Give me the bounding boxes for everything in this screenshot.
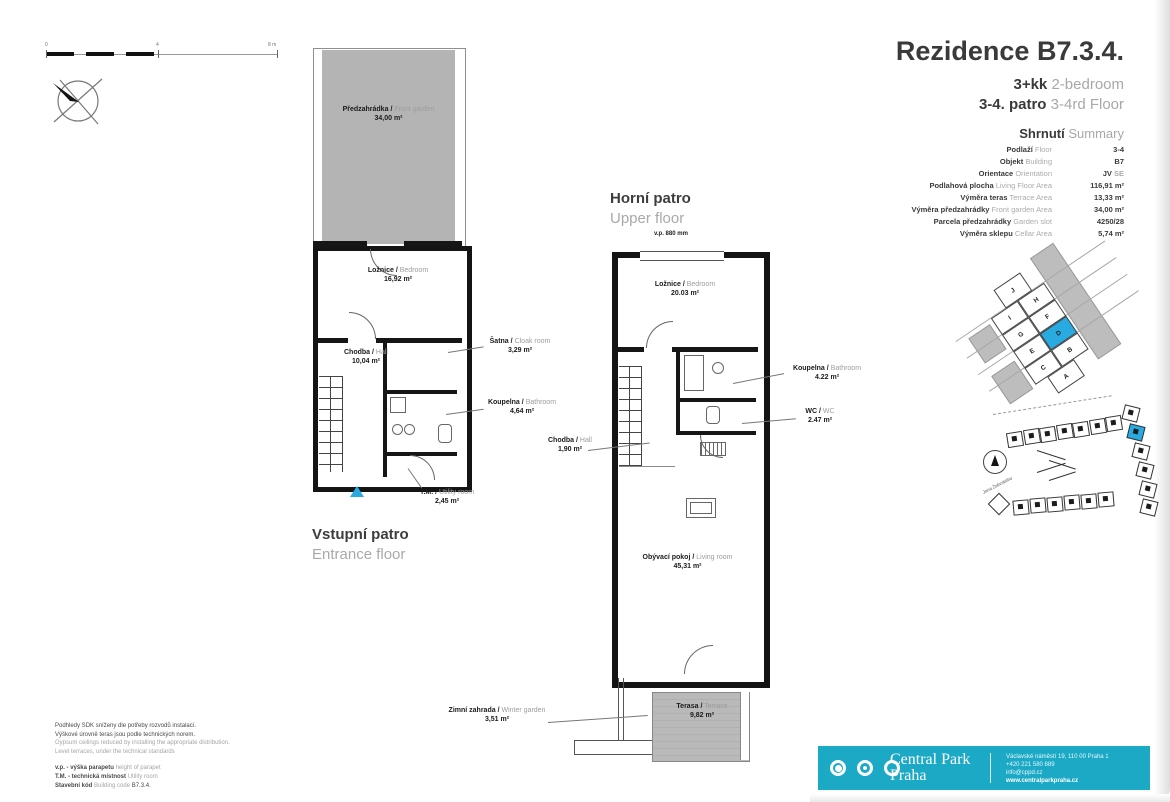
building-dot bbox=[1142, 466, 1148, 472]
wall bbox=[376, 338, 462, 343]
note-line: Výškové úrovně teras jsou podle technick… bbox=[55, 731, 315, 740]
entrance-floor-title-cz: Vstupní patro bbox=[312, 526, 409, 543]
building-square bbox=[1105, 415, 1123, 432]
site-plot-diagram: J I H G F E D C B A bbox=[998, 252, 1138, 392]
winter-garden-post bbox=[618, 678, 624, 740]
summary-row: Výměra teras Terrace Area 13,33 m² bbox=[824, 192, 1124, 204]
wall bbox=[313, 241, 367, 248]
building-dot bbox=[1052, 501, 1057, 506]
scale-tick bbox=[46, 50, 47, 58]
room-label-hall-1: Chodba / Hall 10,04 m² bbox=[320, 348, 412, 366]
room-label-hall-2: Chodba / Hall 1,90 m² bbox=[534, 436, 606, 454]
building-dot bbox=[1103, 496, 1108, 501]
kitchen-unit-inner bbox=[690, 502, 712, 514]
site-map: Pitterova ulice Jana Želivského bbox=[975, 388, 1170, 523]
room-label-front-garden: Předzahrádka / Front garden 34,00 m² bbox=[322, 105, 455, 123]
brand-name: Central Park Praha bbox=[890, 752, 970, 784]
wall bbox=[672, 347, 758, 352]
building-dot bbox=[1077, 425, 1083, 431]
building-dot bbox=[1133, 428, 1139, 434]
summary-row: Podlahová plocha Living Floor Area 116,9… bbox=[824, 180, 1124, 192]
scale-line bbox=[46, 54, 278, 55]
arrow-line bbox=[1037, 450, 1066, 460]
basin-fixture bbox=[392, 424, 403, 435]
footnotes: Podhledy SDK sníženy dle potřeby rozvodů… bbox=[55, 722, 315, 790]
building-dot bbox=[1086, 497, 1091, 502]
footer-divider bbox=[990, 753, 991, 783]
scale-tick bbox=[277, 50, 278, 58]
bathtub-fixture bbox=[684, 355, 704, 391]
summary-row: Výměra předzahrádky Front garden Area 34… bbox=[824, 204, 1124, 216]
building-square bbox=[1088, 418, 1106, 435]
building-dot bbox=[1018, 504, 1023, 509]
upper-unit-outline bbox=[612, 252, 770, 688]
building-square bbox=[1063, 495, 1080, 511]
room-label-bedroom-1: Ložnice / Bedroom 16,92 m² bbox=[338, 266, 458, 284]
scale-segment bbox=[46, 52, 74, 56]
logo-circle-target-icon bbox=[830, 760, 846, 776]
wall bbox=[676, 352, 680, 435]
summary-table: Podlaží Floor 3-4 Objekt Building B7 Ori… bbox=[824, 144, 1124, 240]
room-label-terrace: Terasa / Terrace 9,82 m² bbox=[660, 702, 744, 720]
stairs-line bbox=[629, 366, 630, 466]
building-dot bbox=[1069, 499, 1074, 504]
page-title: Rezidence B7.3.4. bbox=[896, 36, 1124, 67]
building-dot bbox=[1110, 420, 1116, 426]
footer-contact: Václavské náměstí 19, 110 00 Praha 1 +42… bbox=[1006, 753, 1109, 785]
summary-heading: Shrnutí Summary bbox=[1019, 126, 1124, 141]
site-map-boundary bbox=[993, 395, 1112, 415]
kitchen-unit-symbol bbox=[686, 498, 716, 518]
building-dot bbox=[1145, 485, 1151, 491]
building-dot bbox=[1061, 428, 1067, 434]
upper-floor-title-cz: Horní patro bbox=[610, 190, 691, 207]
basin-fixture bbox=[404, 424, 415, 435]
scale-label: 4 bbox=[156, 42, 159, 48]
stairs bbox=[619, 366, 642, 466]
building-square bbox=[1012, 499, 1029, 515]
building-dot bbox=[1028, 433, 1034, 439]
washer-fixture bbox=[390, 397, 406, 413]
room-label-bathroom-2: Koupelna / Bathroom 4.22 m² bbox=[781, 364, 873, 382]
building-square bbox=[1135, 461, 1154, 479]
summary-row: Orientace Orientation JV SE bbox=[824, 168, 1124, 180]
building-square bbox=[1046, 496, 1063, 512]
stairs-line bbox=[330, 376, 331, 472]
stair-landing-line bbox=[619, 466, 675, 467]
arrow-line bbox=[1049, 471, 1076, 481]
leader-line bbox=[548, 715, 648, 723]
note-spacer bbox=[55, 756, 315, 764]
scale-segment bbox=[126, 52, 154, 56]
building-dot bbox=[1146, 503, 1152, 509]
building-square bbox=[1138, 480, 1157, 498]
scale-label: 8 m bbox=[268, 42, 276, 48]
window bbox=[640, 251, 724, 261]
entrance-floor-title-en: Entrance floor bbox=[312, 546, 405, 563]
legend-line: v.p. - výška parapetu height of parapet bbox=[55, 764, 315, 773]
building-square bbox=[1080, 493, 1097, 509]
logo-circle-dot bbox=[835, 765, 842, 772]
building-square bbox=[1072, 420, 1090, 437]
upper-floor-title-en: Upper floor bbox=[610, 210, 684, 227]
page-edge-bottom bbox=[810, 794, 1170, 802]
room-label-winter-garden: Zimní zahrada / Winter garden 3,51 m² bbox=[442, 706, 552, 724]
building-dot bbox=[1035, 502, 1040, 507]
footer-phone: +420 221 580 889 bbox=[1006, 761, 1109, 769]
building-square bbox=[1006, 431, 1024, 448]
arrow-line bbox=[1049, 460, 1076, 470]
building-square bbox=[1139, 498, 1158, 516]
winter-garden-structure bbox=[574, 740, 656, 755]
room-label-cloak: Šatna / Cloak room 3,29 m² bbox=[476, 337, 564, 355]
site-compass-icon bbox=[983, 450, 1007, 474]
entrance-marker-triangle bbox=[350, 486, 364, 497]
building-square bbox=[1029, 498, 1046, 514]
scale-label: 0 bbox=[45, 42, 48, 48]
building-square bbox=[1055, 423, 1073, 440]
wall bbox=[383, 390, 457, 394]
building-square bbox=[1097, 491, 1114, 507]
summary-row: Objekt Building B7 bbox=[824, 156, 1124, 168]
compass-icon bbox=[48, 70, 108, 130]
room-label-bedroom-2: Ložnice / Bedroom 20.03 m² bbox=[630, 280, 740, 298]
building-dot bbox=[1094, 423, 1100, 429]
parapet-height-note: v.p. 880 mm bbox=[654, 231, 688, 237]
scale-bar: 0 4 8 m bbox=[46, 42, 278, 62]
room-label-utility: T.M. / Utility room 2,45 m² bbox=[408, 488, 486, 506]
building-dot bbox=[1011, 436, 1017, 442]
toilet-fixture bbox=[438, 424, 452, 443]
wall bbox=[618, 347, 644, 352]
unit-type: 3+kk 2-bedroom bbox=[1013, 76, 1124, 93]
wall bbox=[318, 338, 348, 343]
footer-website: www.centralparkpraha.cz bbox=[1006, 777, 1109, 785]
building-square bbox=[1131, 442, 1150, 460]
summary-row: Podlaží Floor 3-4 bbox=[824, 144, 1124, 156]
unit-floor: 3-4. patro 3-4rd Floor bbox=[979, 96, 1124, 113]
building-square-highlighted bbox=[1126, 423, 1145, 441]
wall bbox=[383, 452, 457, 456]
legend-line: T.M. - technická místnost Utility room bbox=[55, 773, 315, 782]
stairs bbox=[319, 376, 343, 472]
basin-fixture bbox=[712, 362, 724, 374]
wall bbox=[680, 398, 756, 402]
toilet-fixture bbox=[706, 406, 720, 424]
summary-row: Parcela předzahrádky Garden slot 4250/28 bbox=[824, 216, 1124, 228]
scale-segment bbox=[86, 52, 114, 56]
note-line: Podhledy SDK sníženy dle potřeby rozvodů… bbox=[55, 722, 315, 731]
footer-address: Václavské náměstí 19, 110 00 Praha 1 bbox=[1006, 753, 1109, 761]
site-compass-needle bbox=[991, 455, 999, 466]
footer-banner: Central Park Praha Václavské náměstí 19,… bbox=[818, 746, 1150, 790]
room-label-wc: WC / WC 2.47 m² bbox=[790, 407, 850, 425]
room-label-living: Obývací pokoj / Living room 45,31 m² bbox=[630, 553, 745, 571]
building-square bbox=[1039, 426, 1057, 443]
logo-circle-dot bbox=[863, 766, 867, 770]
building-square bbox=[1121, 404, 1140, 422]
room-label-bathroom-1: Koupelna / Bathroom 4,64 m² bbox=[476, 398, 568, 416]
note-line: Level terraces, under the technical stan… bbox=[55, 748, 315, 757]
building-square bbox=[1022, 428, 1040, 445]
note-line: Gypsum ceilings reduced by installing th… bbox=[55, 739, 315, 748]
street-label: Jana Želivského bbox=[982, 476, 1013, 495]
front-garden-fill bbox=[322, 50, 455, 244]
building-dot bbox=[1138, 447, 1144, 453]
scale-tick bbox=[158, 50, 159, 58]
legend-line: Stavební kód Building code B7.3.4. bbox=[55, 782, 315, 791]
building-square-diamond bbox=[988, 493, 1011, 516]
building-dot bbox=[1128, 409, 1134, 415]
building-dot bbox=[1044, 431, 1050, 437]
logo-circle-ring-dot-icon bbox=[857, 760, 873, 776]
wall bbox=[404, 241, 462, 248]
footer-email: info@cppd.cz bbox=[1006, 769, 1109, 777]
